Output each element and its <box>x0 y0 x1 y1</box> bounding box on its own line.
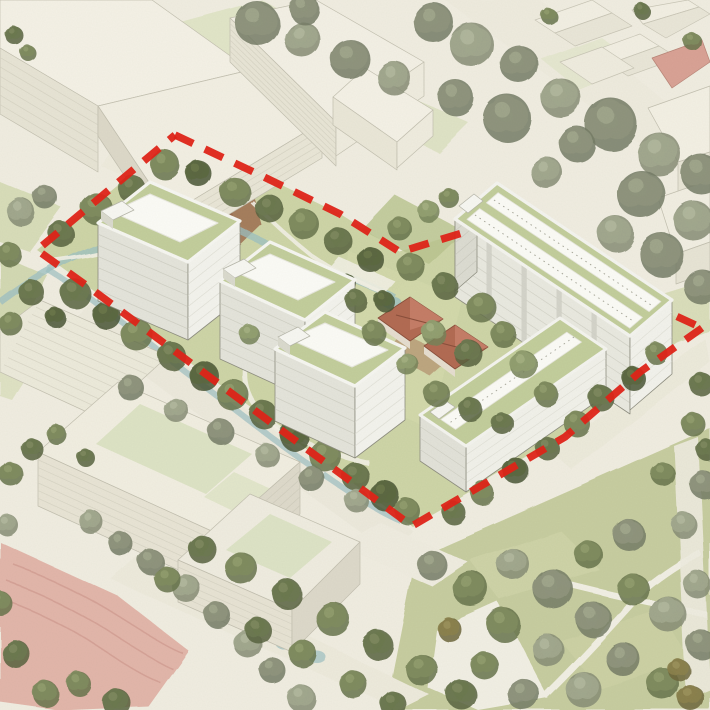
paper-texture-overlay <box>0 0 710 710</box>
masterplan-illustration <box>0 0 710 710</box>
site-plan-canvas <box>0 0 710 710</box>
